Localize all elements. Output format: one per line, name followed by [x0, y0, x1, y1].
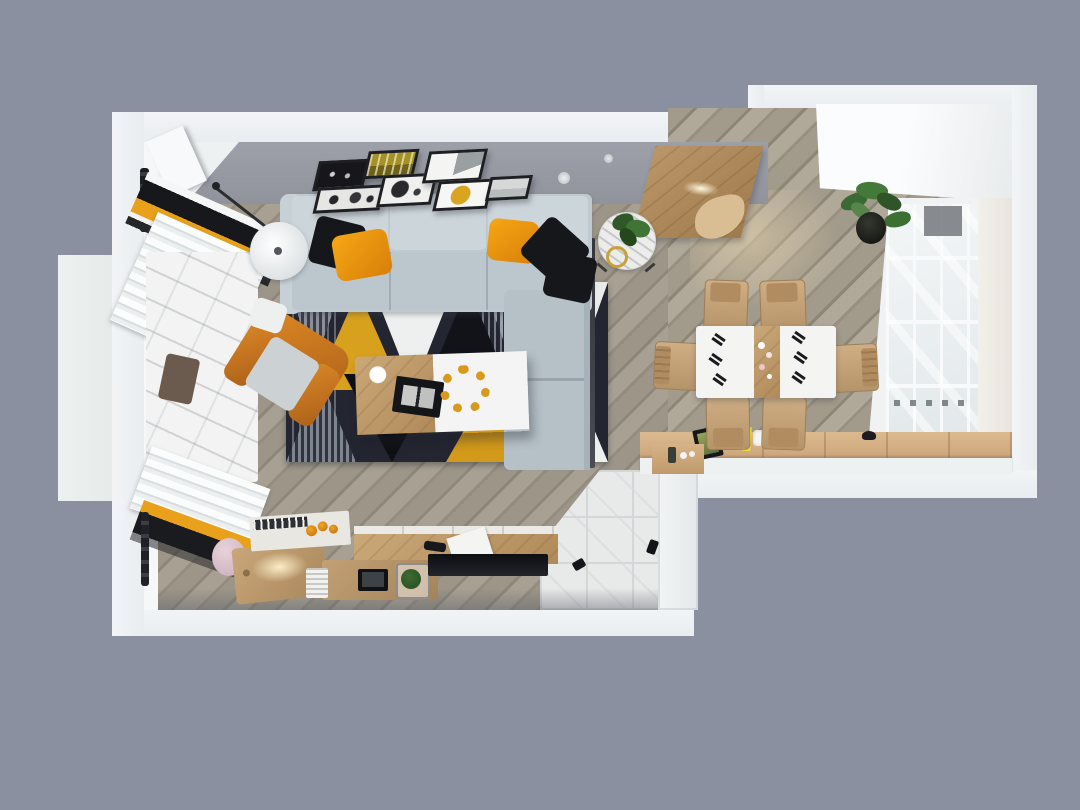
counter-lamp-3	[862, 431, 876, 440]
cabinet-top-edge	[354, 526, 558, 534]
table-flower-4	[767, 374, 772, 379]
dining-chair-top-2	[759, 279, 807, 333]
chair-bottom-2-backflap	[768, 427, 799, 447]
dining-chair-top-1	[703, 279, 749, 333]
chaise-edge-shade	[584, 290, 590, 470]
chair-top-1-backflap	[710, 282, 741, 302]
wall-hook-strip-bottom	[141, 512, 149, 586]
coffee-table	[355, 351, 530, 437]
left-bumpout-wall	[58, 255, 114, 501]
chair-top-2-backflap	[766, 282, 798, 302]
cutlery-right-3	[794, 371, 806, 380]
island-glass-2	[689, 451, 695, 457]
cutlery-left-2	[711, 353, 723, 362]
table-flower-1	[758, 342, 765, 349]
book-pages	[401, 385, 435, 409]
wall-bottom-left	[112, 608, 694, 636]
dining-chair-left	[653, 341, 701, 391]
cabinet-underlight	[681, 180, 720, 198]
pillow-orange-1	[330, 227, 393, 282]
wall-bottom-right	[666, 470, 1037, 498]
gallery-frame-2	[313, 184, 386, 213]
dining-table	[696, 326, 836, 398]
cutlery-left-1	[714, 333, 726, 342]
tray-orange-decor-1	[306, 525, 318, 537]
table-flower-3	[759, 364, 765, 370]
chest-handle	[243, 569, 251, 577]
kitchen-island-face	[658, 470, 698, 610]
floor-lamp-finial	[274, 247, 282, 255]
console-tray-unit	[249, 511, 351, 552]
hanging-wood-cabinet	[633, 146, 764, 238]
floor-lamp-pole-cap	[212, 182, 220, 190]
basket-plant	[401, 569, 421, 589]
window-glass-reflection	[886, 204, 978, 452]
cutlery-right-2	[796, 351, 808, 360]
dining-chair-bottom-2	[761, 395, 807, 451]
tray-orange-decor-3	[329, 524, 339, 534]
dining-chair-bottom-1	[706, 396, 751, 451]
window-sill-plants-reflection	[894, 400, 972, 406]
dining-chair-right	[831, 343, 879, 393]
plant-wire-basket	[396, 563, 430, 599]
book-stack	[306, 568, 328, 598]
ceiling-spotlight-2	[604, 154, 613, 163]
chair-left-back	[654, 346, 671, 385]
kitchen-island-top	[652, 444, 704, 474]
chest-light-glow	[250, 549, 309, 585]
cutlery-right-1	[794, 331, 806, 340]
window-frame-right	[978, 198, 1012, 470]
window-dark-reflection	[924, 206, 962, 236]
gallery-frame-5	[422, 149, 488, 184]
table-gold-dish	[606, 246, 628, 268]
shelf-tablet-screen	[362, 572, 384, 587]
bulkhead-cabinet	[816, 104, 1012, 202]
tv-panel	[428, 554, 548, 576]
island-glass-1	[680, 452, 687, 459]
island-bottle	[668, 447, 676, 463]
cabinet-wood-blob	[695, 191, 745, 244]
console-lower-shelf	[322, 560, 438, 600]
cutlery-left-3	[715, 373, 727, 382]
tray-keys-strip	[253, 516, 308, 530]
chair-right-back	[861, 348, 878, 387]
floor-plan-canvas	[0, 0, 1080, 810]
coffee-table-book	[392, 376, 445, 418]
wall-right	[1012, 85, 1037, 498]
gallery-frame-7	[485, 175, 533, 201]
potted-plant-pot	[856, 212, 886, 244]
wall-top-left	[112, 112, 764, 142]
gallery-frame-6	[432, 179, 494, 212]
shelf-tablet	[358, 569, 388, 591]
tray-orange-decor-2	[317, 521, 328, 532]
dining-table-runner	[754, 326, 780, 398]
ceiling-spotlight-1	[558, 172, 570, 184]
window	[866, 198, 1012, 470]
pillow-black-3	[542, 250, 599, 305]
chair-bottom-1-backflap	[713, 428, 743, 448]
table-flower-2	[766, 352, 772, 358]
